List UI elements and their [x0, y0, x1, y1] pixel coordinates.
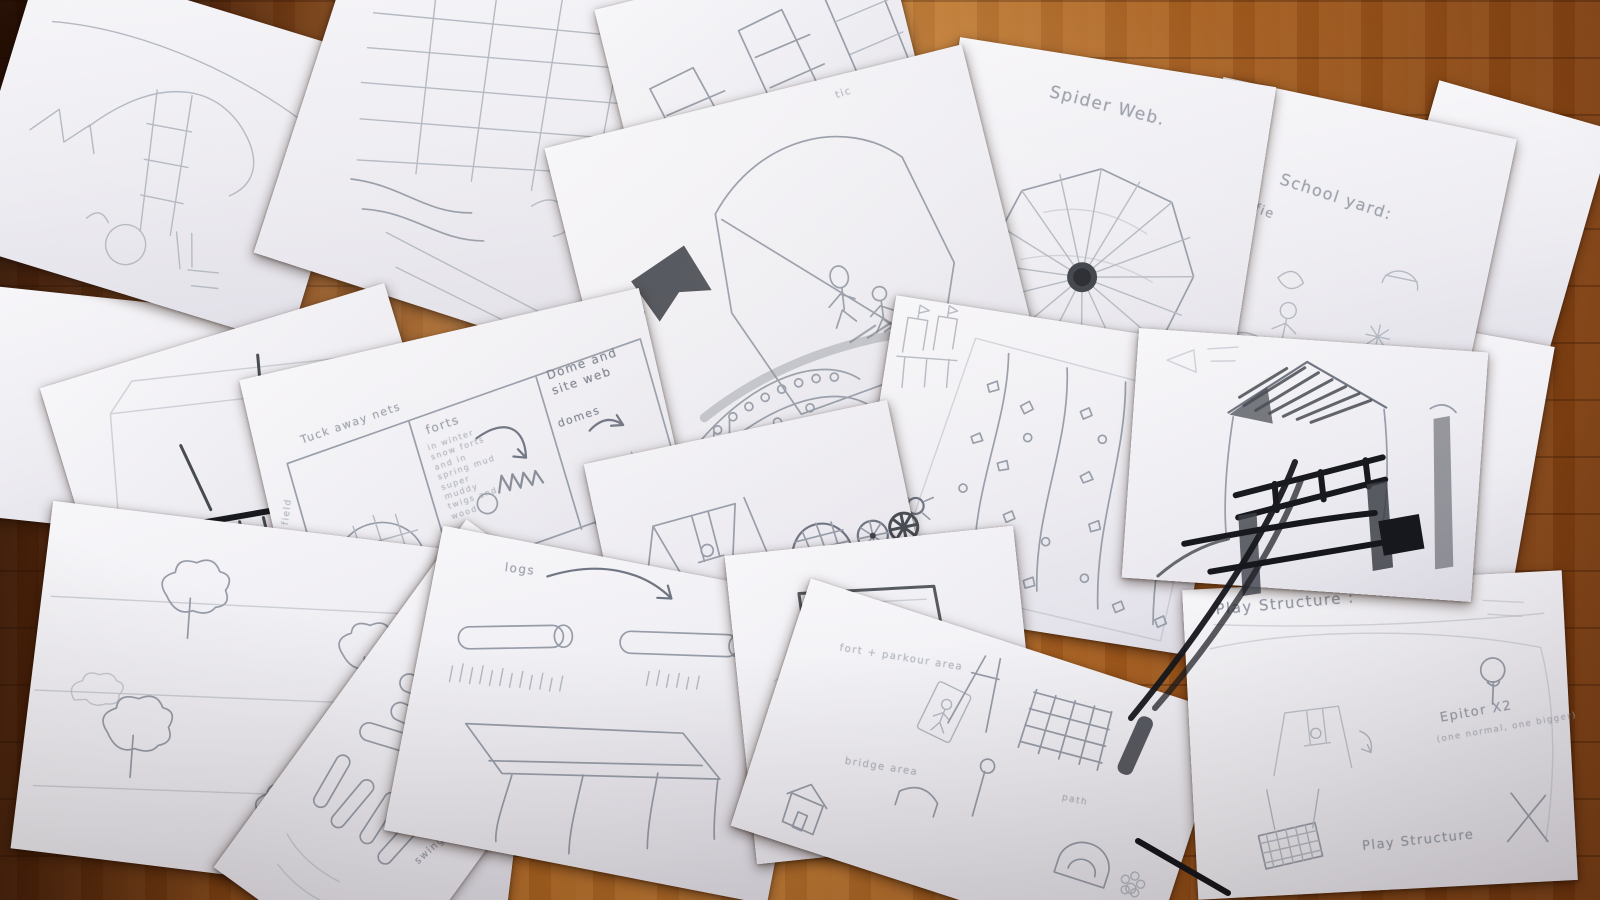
net-grid	[1017, 688, 1114, 770]
black-slide-stroke-overlay	[1115, 450, 1315, 740]
tree	[156, 555, 232, 642]
photo-scene: swings and things School yard: Sofie Spi…	[0, 0, 1600, 900]
swing-seat-doodle	[1258, 823, 1322, 869]
log	[620, 631, 748, 657]
log	[458, 625, 572, 649]
black-diagonal-stroke-overlay	[1130, 835, 1240, 900]
